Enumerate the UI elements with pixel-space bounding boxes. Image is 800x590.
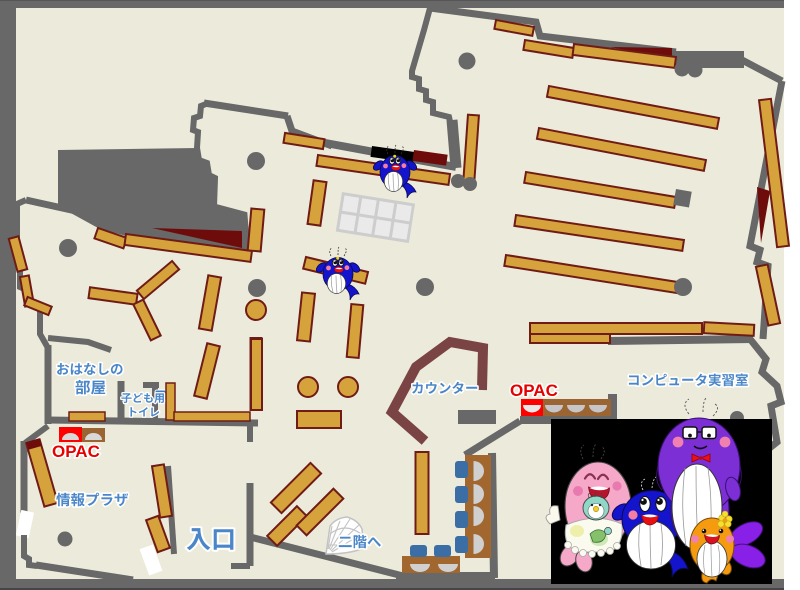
svg-text:OPAC: OPAC <box>52 442 100 461</box>
svg-text:OPAC: OPAC <box>510 381 558 400</box>
